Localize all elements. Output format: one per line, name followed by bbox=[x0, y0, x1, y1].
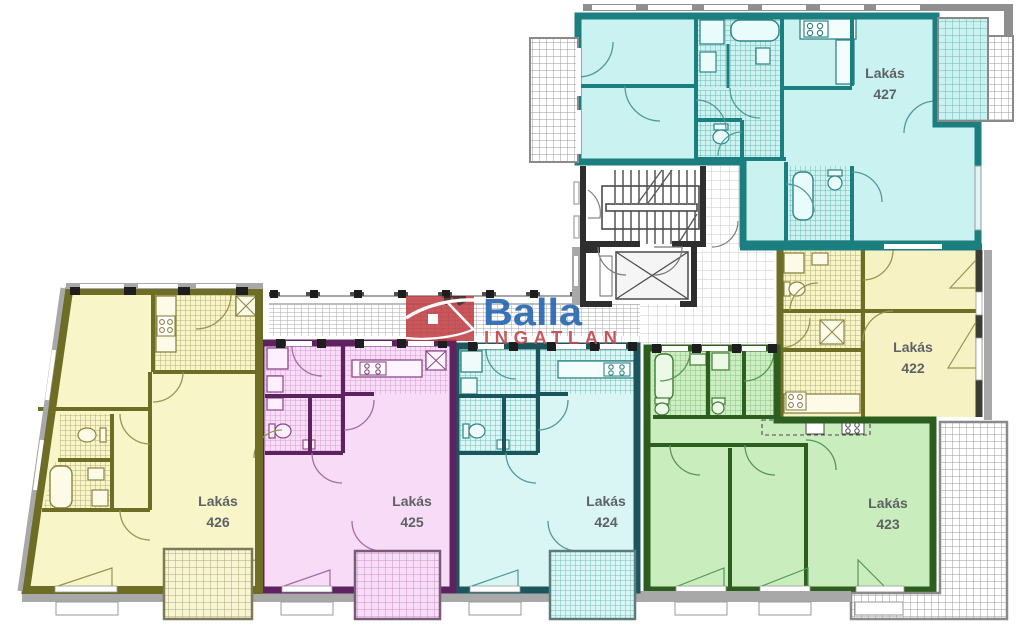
svg-text:Lakás: Lakás bbox=[893, 339, 933, 355]
svg-text:423: 423 bbox=[876, 516, 900, 532]
svg-text:Lakás: Lakás bbox=[586, 493, 626, 509]
svg-text:425: 425 bbox=[400, 514, 424, 530]
svg-text:Lakás: Lakás bbox=[865, 65, 905, 81]
svg-text:427: 427 bbox=[873, 86, 897, 102]
svg-text:424: 424 bbox=[594, 514, 618, 530]
svg-text:Lakás: Lakás bbox=[868, 495, 908, 511]
svg-text:Lakás: Lakás bbox=[198, 493, 238, 509]
svg-text:INGATLAN: INGATLAN bbox=[484, 327, 617, 348]
svg-text:426: 426 bbox=[206, 514, 230, 530]
svg-text:422: 422 bbox=[901, 360, 925, 376]
svg-text:Lakás: Lakás bbox=[392, 493, 432, 509]
